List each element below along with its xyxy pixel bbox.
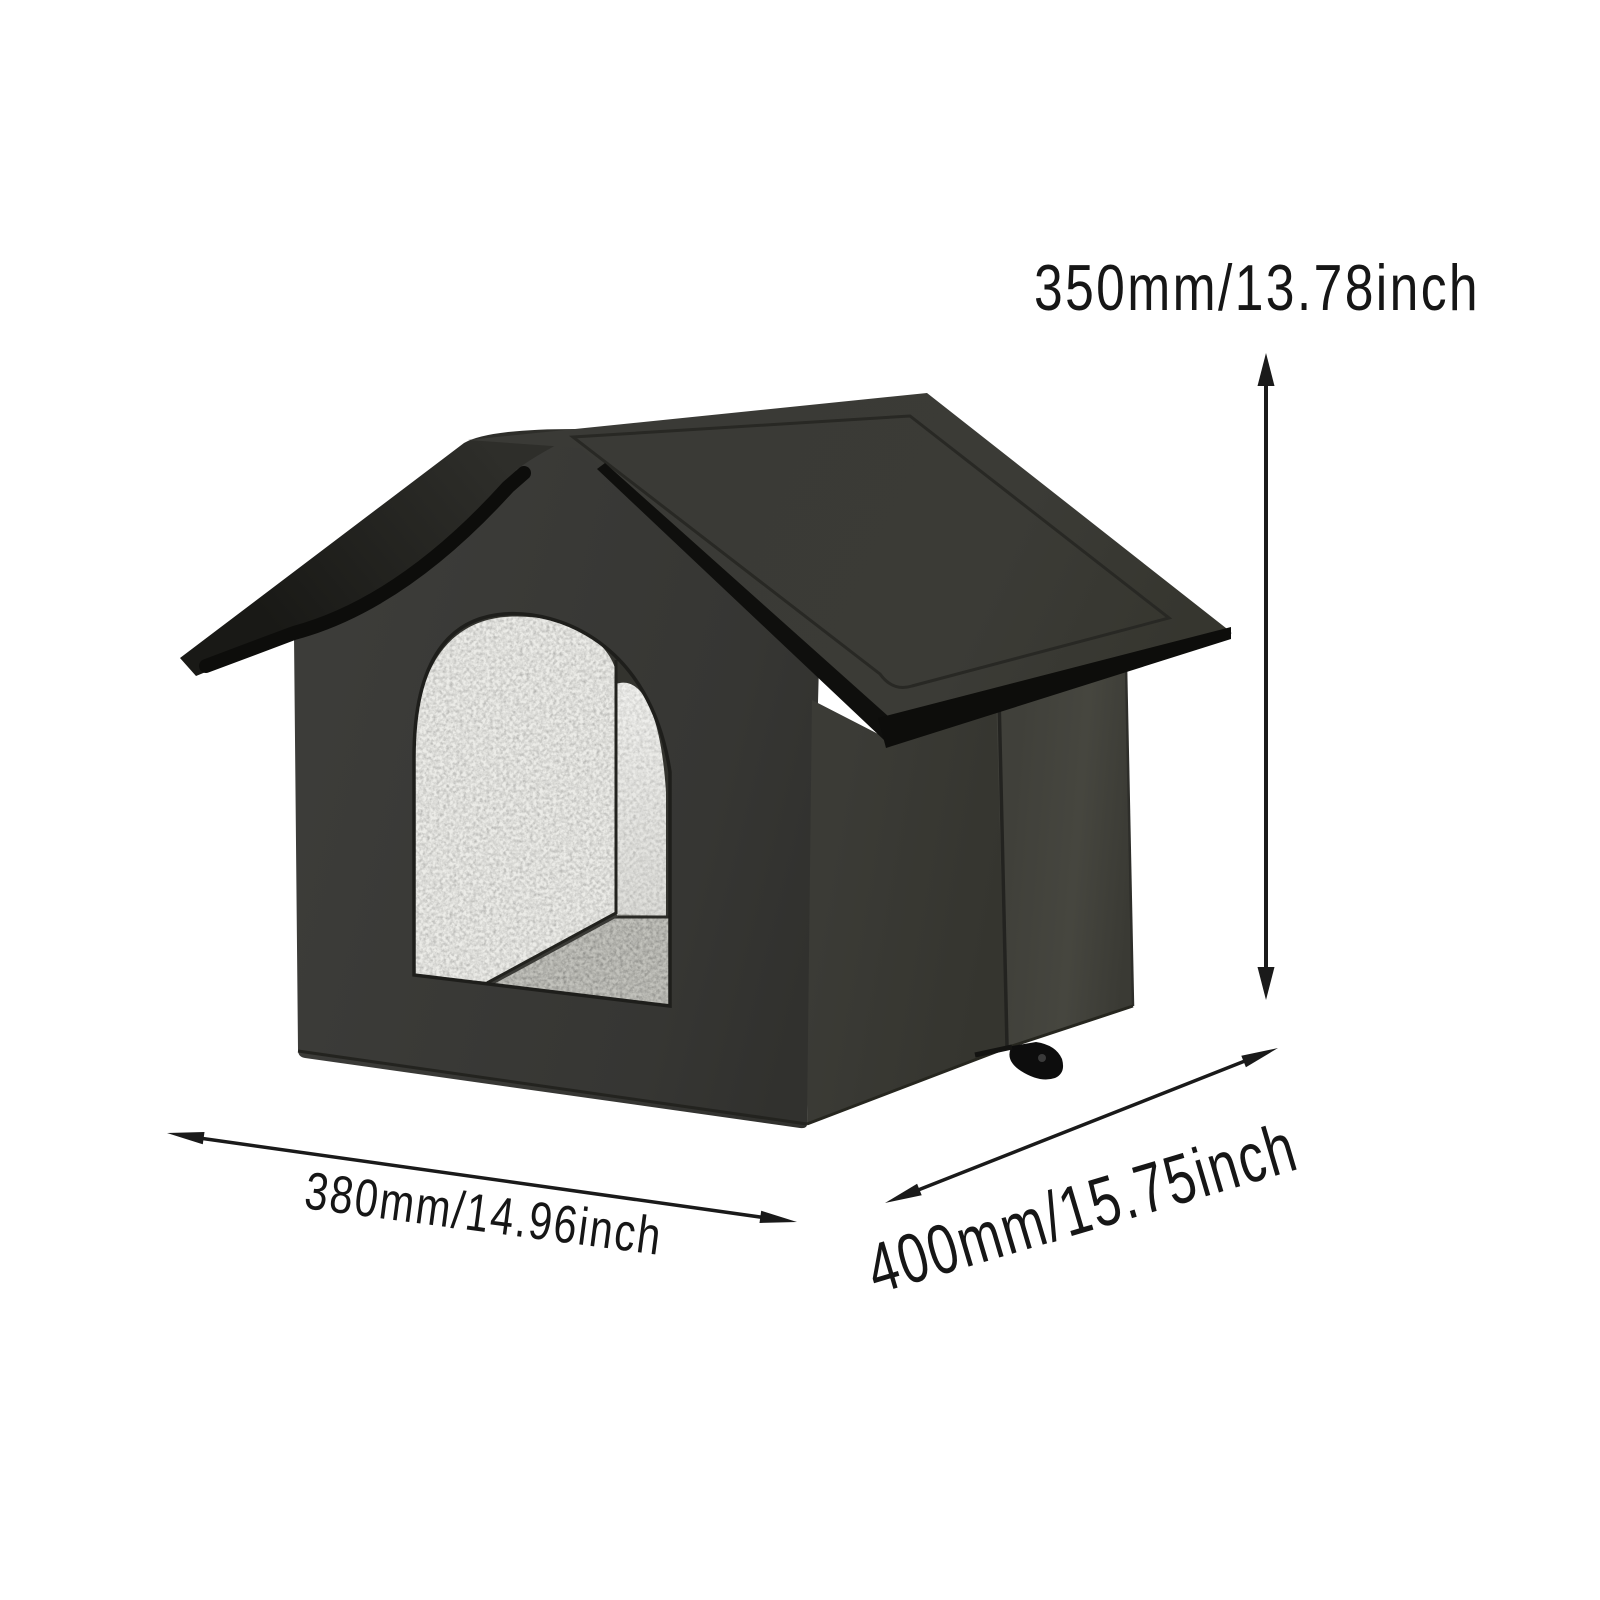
svg-text:350mm/13.78inch: 350mm/13.78inch: [1034, 251, 1480, 324]
